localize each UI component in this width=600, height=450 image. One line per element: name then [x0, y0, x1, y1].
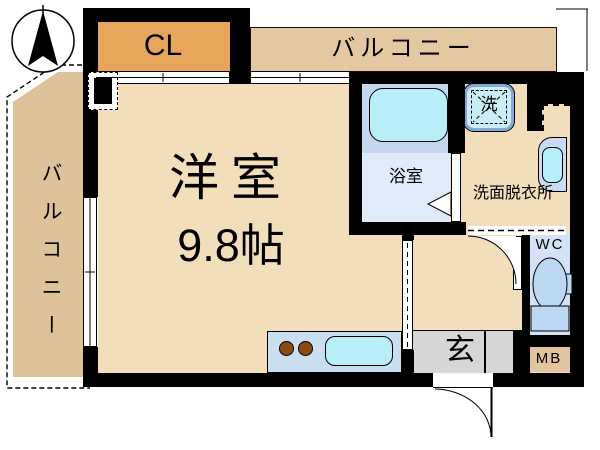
wc-label: WC — [530, 237, 570, 253]
balcony-left-label: バルコニー — [33, 142, 61, 372]
entrance-label: 玄 — [428, 335, 492, 367]
left-window — [83, 197, 97, 347]
main-room-size-label: 9.8帖 — [98, 222, 364, 269]
sink-bowl-icon — [542, 147, 563, 183]
front-door-swing-icon — [435, 388, 492, 437]
wall-slide-top — [402, 225, 414, 240]
balcony-top-label: バルコニー — [250, 36, 557, 61]
burner-icon — [298, 341, 313, 356]
wall-wc-left — [522, 233, 530, 335]
closet-label: CL — [96, 30, 230, 62]
kitchen-sink-icon — [325, 336, 393, 366]
wall-closet-right — [230, 8, 250, 84]
room-bathroom-floor — [362, 153, 450, 222]
wc-door-leaf — [513, 236, 522, 290]
wall-top — [83, 8, 250, 22]
meter-box-label: MB — [528, 351, 570, 367]
floor-plan: CL バルコニー バルコニー 洋室 9.8帖 浴室 洗 洗面脱衣所 WC MB … — [0, 0, 600, 450]
washroom-opening — [468, 226, 566, 235]
sliding-door — [402, 240, 413, 350]
wall-bath-right — [448, 84, 465, 153]
wall-bottom-left — [83, 373, 433, 387]
column-core — [94, 78, 112, 104]
main-room-label: 洋室 — [98, 152, 364, 205]
front-door-opening — [433, 373, 493, 387]
burner-icon — [279, 341, 294, 356]
wall-balcony-bottom — [350, 72, 584, 84]
washroom-label: 洗面脱衣所 — [458, 186, 568, 203]
bathtub-icon — [369, 88, 448, 142]
washing-machine-label: 洗 — [464, 96, 514, 114]
wall-wc-bottom — [522, 335, 584, 347]
compass-icon — [12, 5, 74, 72]
balcony-window — [250, 71, 350, 84]
bathroom-label: 浴室 — [362, 168, 450, 186]
pipe-shaft-notch — [542, 104, 570, 131]
wall-slide-bottom — [402, 350, 414, 387]
